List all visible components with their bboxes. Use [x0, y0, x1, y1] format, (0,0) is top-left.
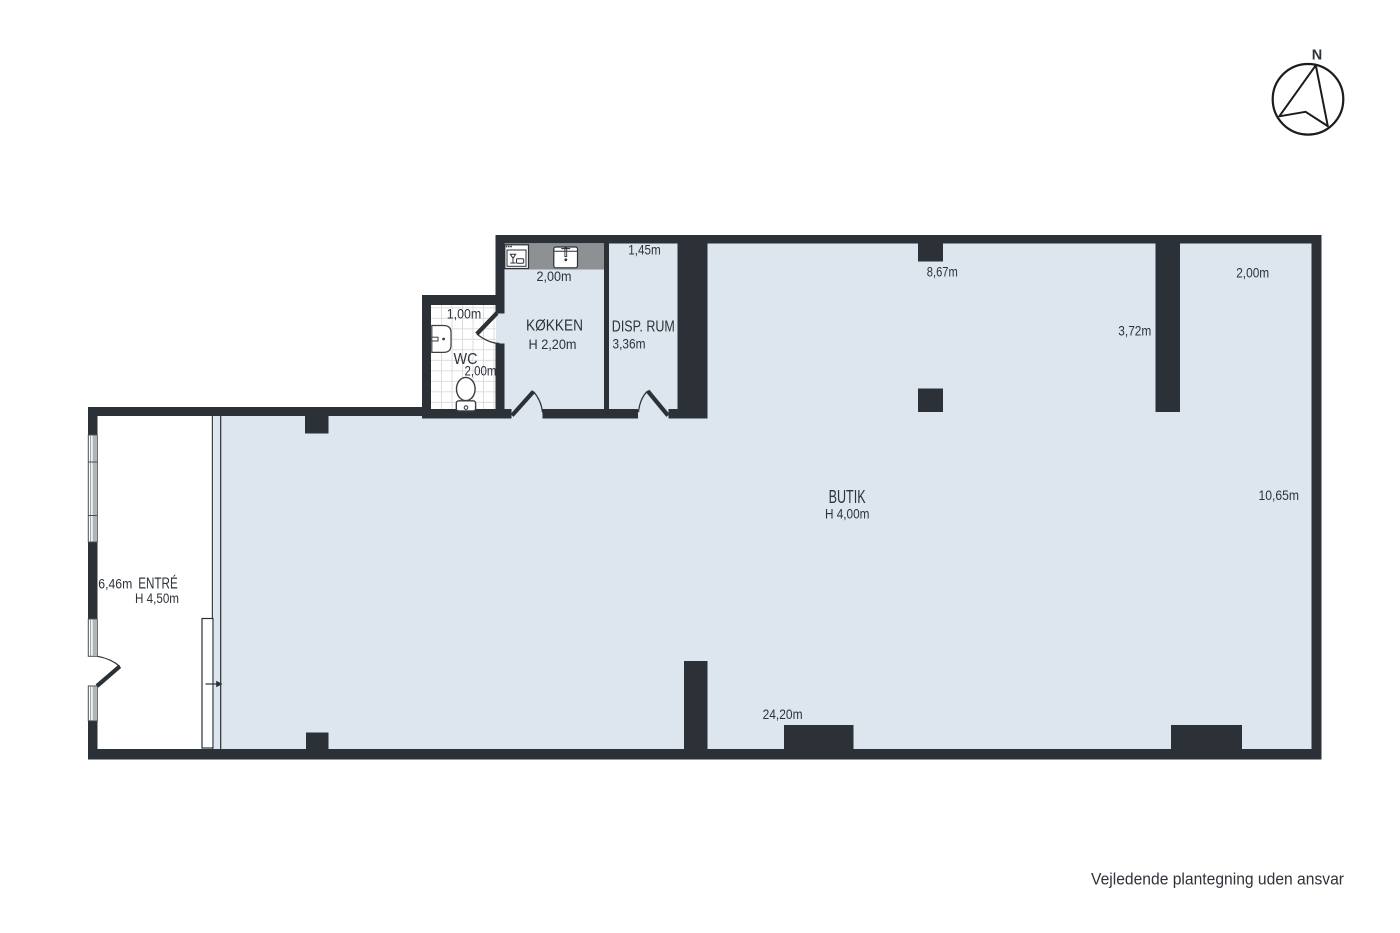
svg-text:10,65m: 10,65m — [1259, 488, 1300, 503]
svg-text:1,00m: 1,00m — [447, 307, 482, 322]
svg-text:Vejledende plantegning uden an: Vejledende plantegning uden ansvar — [1091, 871, 1344, 889]
svg-text:BUTIK: BUTIK — [829, 487, 866, 507]
svg-text:N: N — [1312, 48, 1322, 64]
svg-text:3,36m: 3,36m — [613, 337, 646, 352]
svg-text:24,20m: 24,20m — [763, 707, 803, 722]
svg-text:8,67m: 8,67m — [927, 265, 958, 280]
svg-text:2,00m: 2,00m — [465, 364, 497, 379]
svg-text:2,00m: 2,00m — [537, 269, 572, 284]
svg-text:H 4,50m: H 4,50m — [135, 591, 179, 606]
svg-text:DISP. RUM: DISP. RUM — [612, 319, 675, 336]
svg-text:2,00m: 2,00m — [1236, 266, 1269, 281]
svg-text:3,72m: 3,72m — [1118, 324, 1151, 339]
svg-text:ENTRÉ: ENTRÉ — [138, 576, 178, 593]
svg-text:KØKKEN: KØKKEN — [526, 318, 583, 335]
svg-text:6,46m: 6,46m — [98, 577, 132, 592]
svg-text:1,45m: 1,45m — [628, 243, 661, 258]
svg-text:H 4,00m: H 4,00m — [825, 507, 870, 522]
svg-text:H 2,20m: H 2,20m — [529, 337, 577, 352]
